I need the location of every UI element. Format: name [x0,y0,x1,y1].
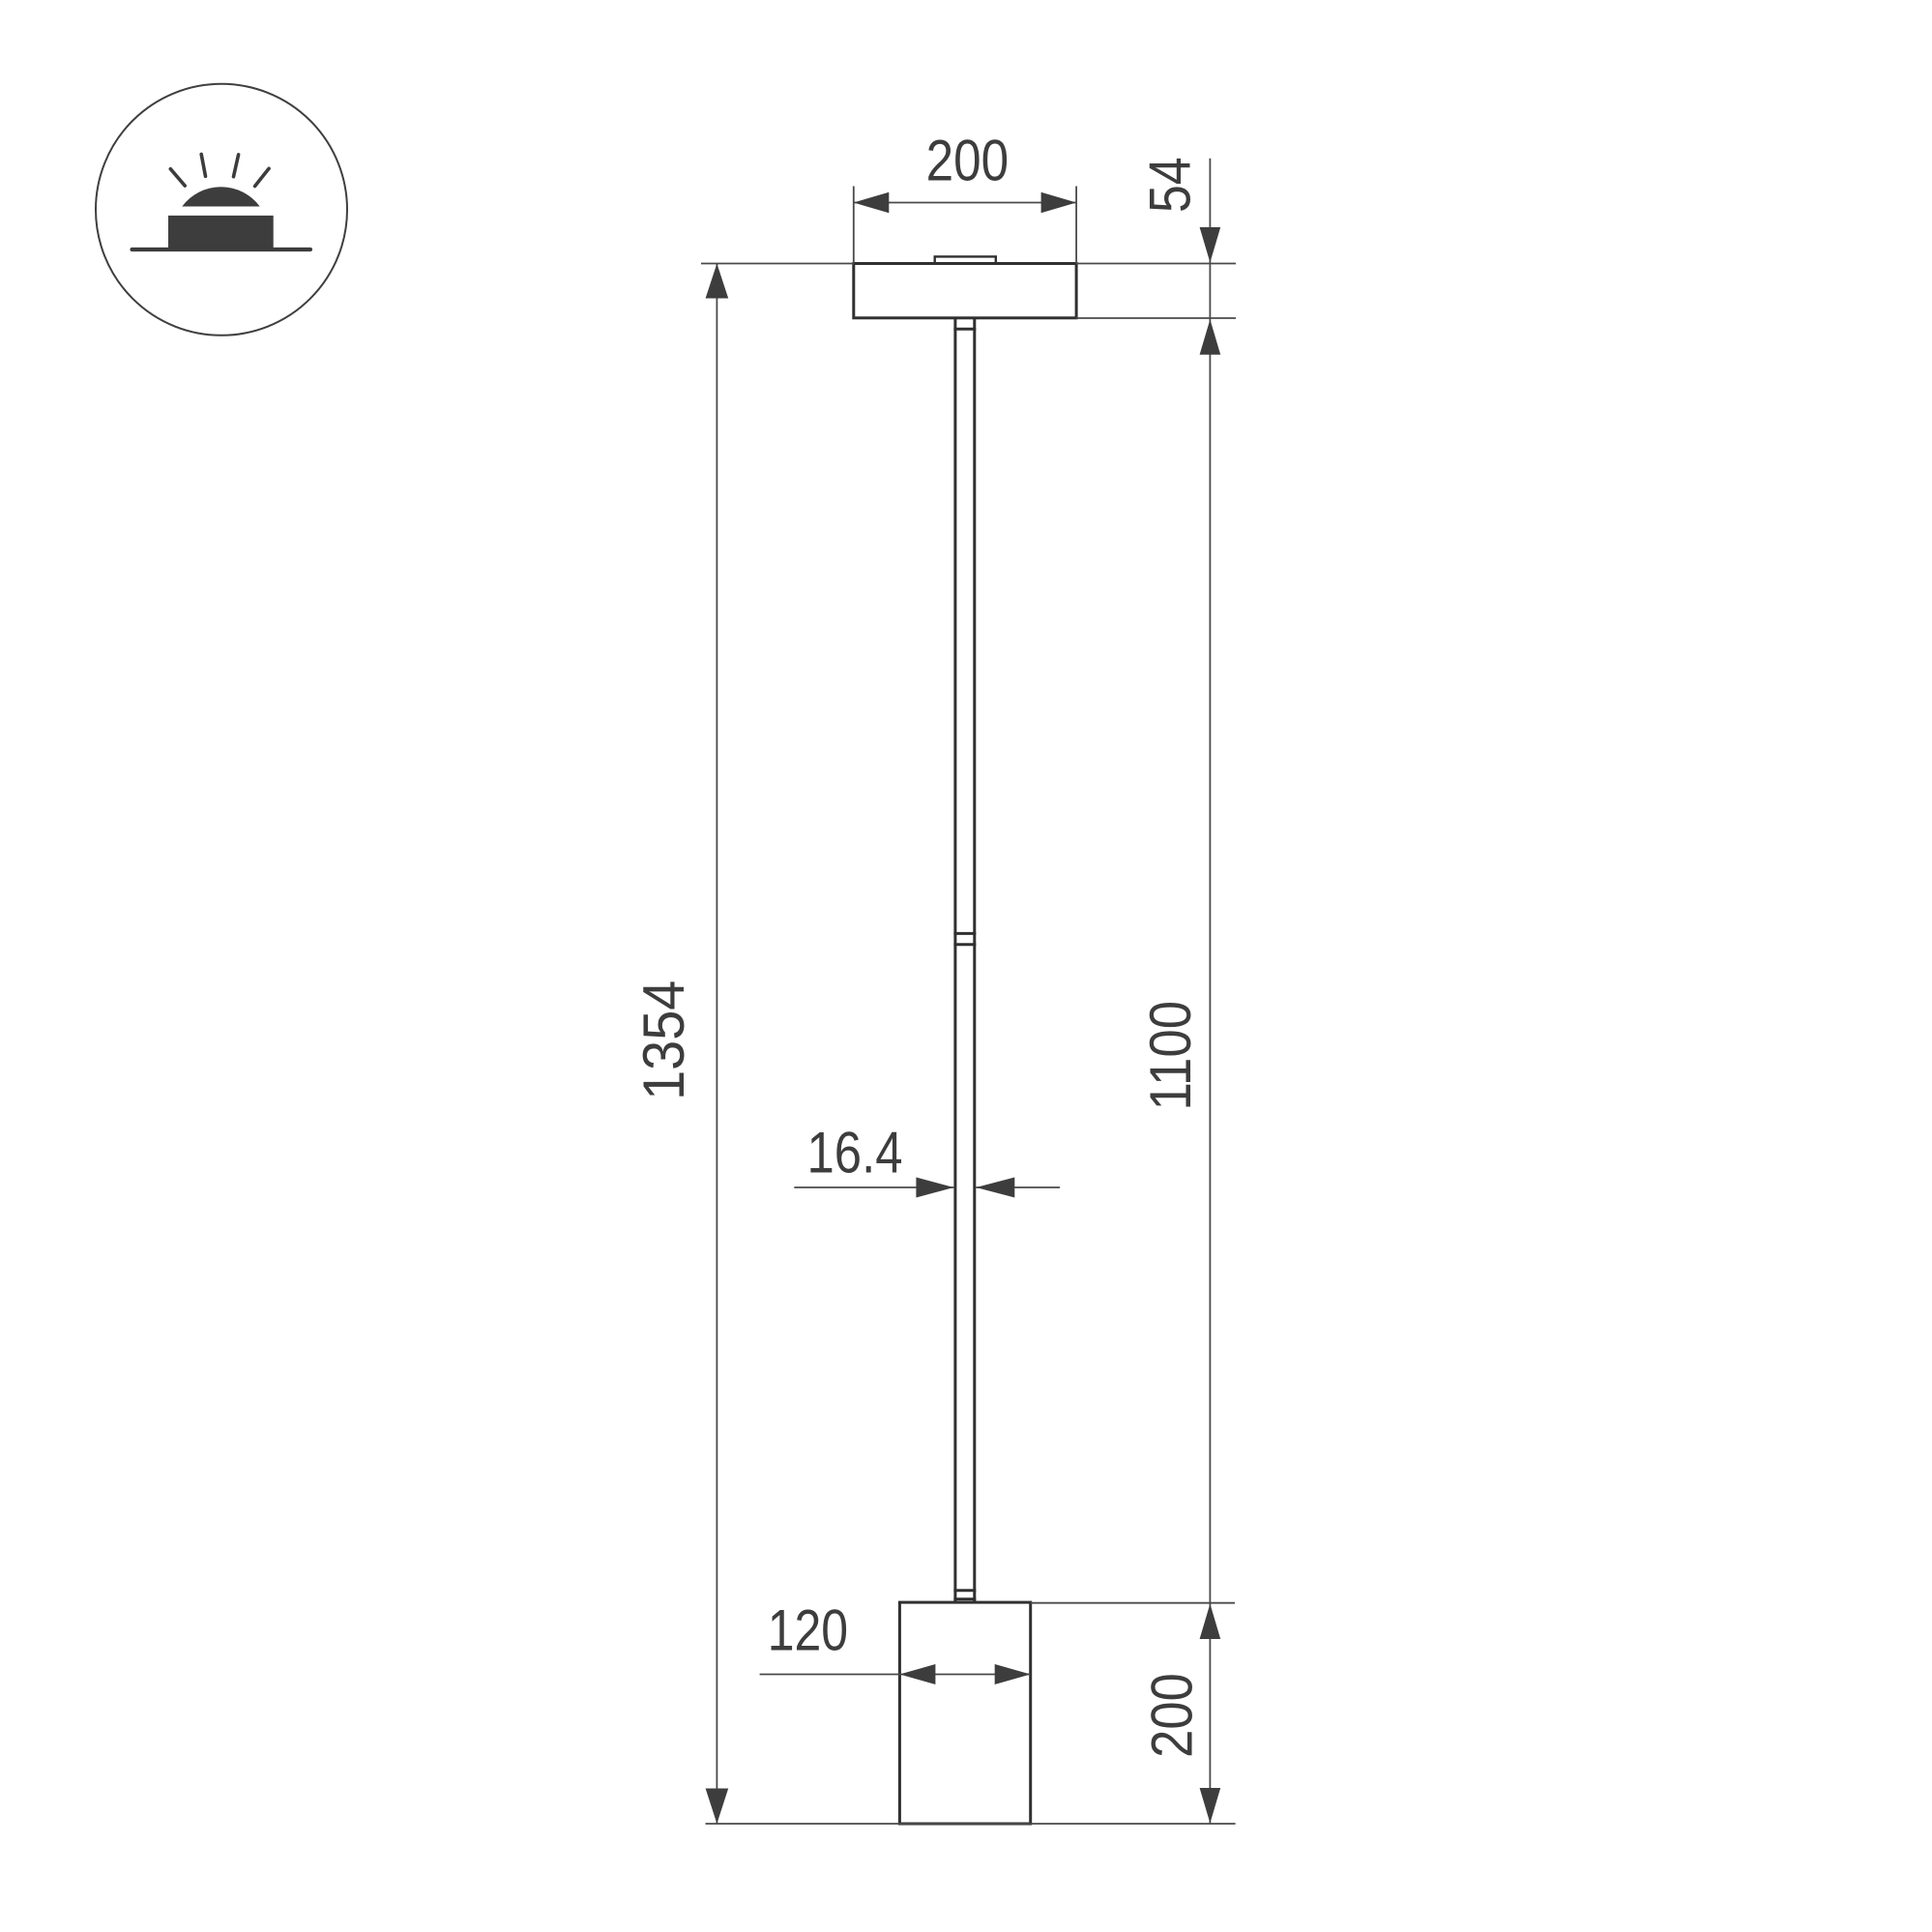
svg-text:200: 200 [926,128,1010,192]
svg-text:120: 120 [768,1598,848,1663]
svg-text:1354: 1354 [631,981,696,1100]
svg-text:200: 200 [1139,1673,1204,1758]
svg-text:16.4: 16.4 [807,1120,903,1185]
svg-text:54: 54 [1138,157,1203,213]
svg-text:1100: 1100 [1138,1001,1203,1111]
